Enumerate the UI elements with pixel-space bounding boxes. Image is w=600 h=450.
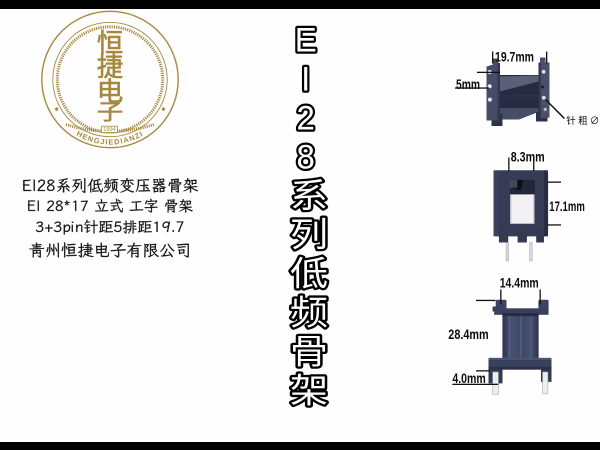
svg-text:1994: 1994 xyxy=(103,127,115,133)
svg-text:19.7mm: 19.7mm xyxy=(495,49,534,64)
svg-text:频: 频 xyxy=(290,293,328,332)
svg-text:E: E xyxy=(295,22,317,60)
svg-text:子: 子 xyxy=(97,101,124,125)
svg-text:28.4mm: 28.4mm xyxy=(448,327,488,342)
svg-text:针粗∅0.8: 针粗∅0.8 xyxy=(566,115,600,127)
svg-text:14.4mm: 14.4mm xyxy=(500,276,539,291)
svg-text:8: 8 xyxy=(297,139,315,177)
svg-text:I: I xyxy=(301,61,310,99)
svg-text:2: 2 xyxy=(297,100,315,138)
svg-text:5mm: 5mm xyxy=(456,77,480,92)
svg-text:17.1mm: 17.1mm xyxy=(549,199,585,214)
svg-text:列: 列 xyxy=(290,215,328,254)
svg-text:低: 低 xyxy=(290,254,328,293)
svg-text:系: 系 xyxy=(290,176,328,215)
svg-text:8.3mm: 8.3mm xyxy=(511,150,545,165)
svg-text:骨: 骨 xyxy=(290,332,328,371)
svg-text:架: 架 xyxy=(290,371,328,410)
